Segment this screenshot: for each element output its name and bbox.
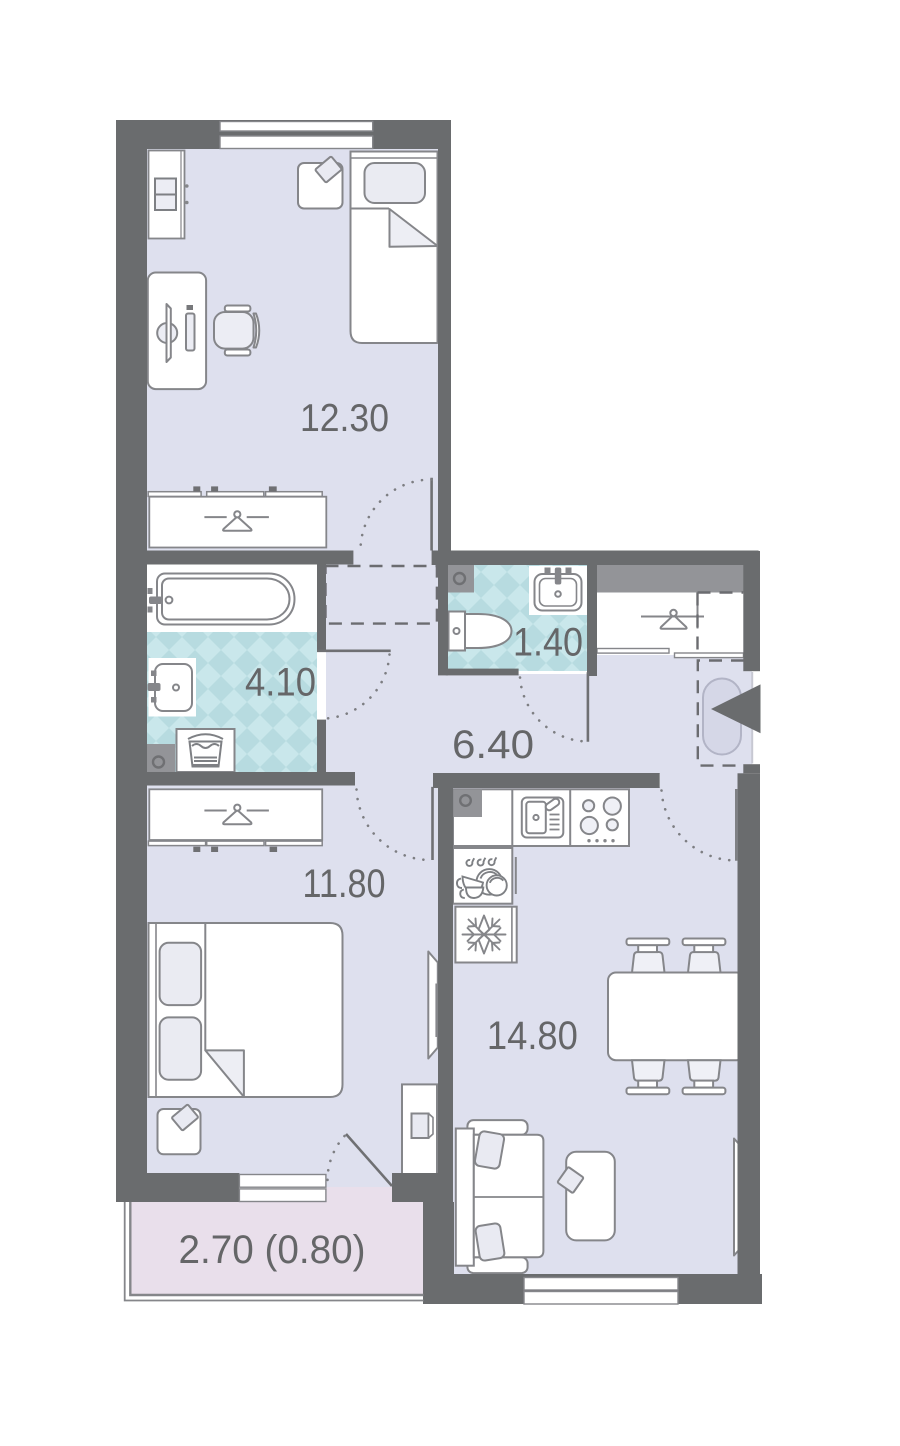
svg-text:6.40: 6.40 xyxy=(452,723,534,767)
svg-text:1.40: 1.40 xyxy=(513,621,583,665)
svg-text:11.80: 11.80 xyxy=(303,862,386,906)
svg-text:12.30: 12.30 xyxy=(300,397,389,440)
svg-text:2.70 (0.80): 2.70 (0.80) xyxy=(179,1228,366,1272)
svg-text:14.80: 14.80 xyxy=(487,1014,578,1058)
svg-text:4.10: 4.10 xyxy=(245,661,316,705)
